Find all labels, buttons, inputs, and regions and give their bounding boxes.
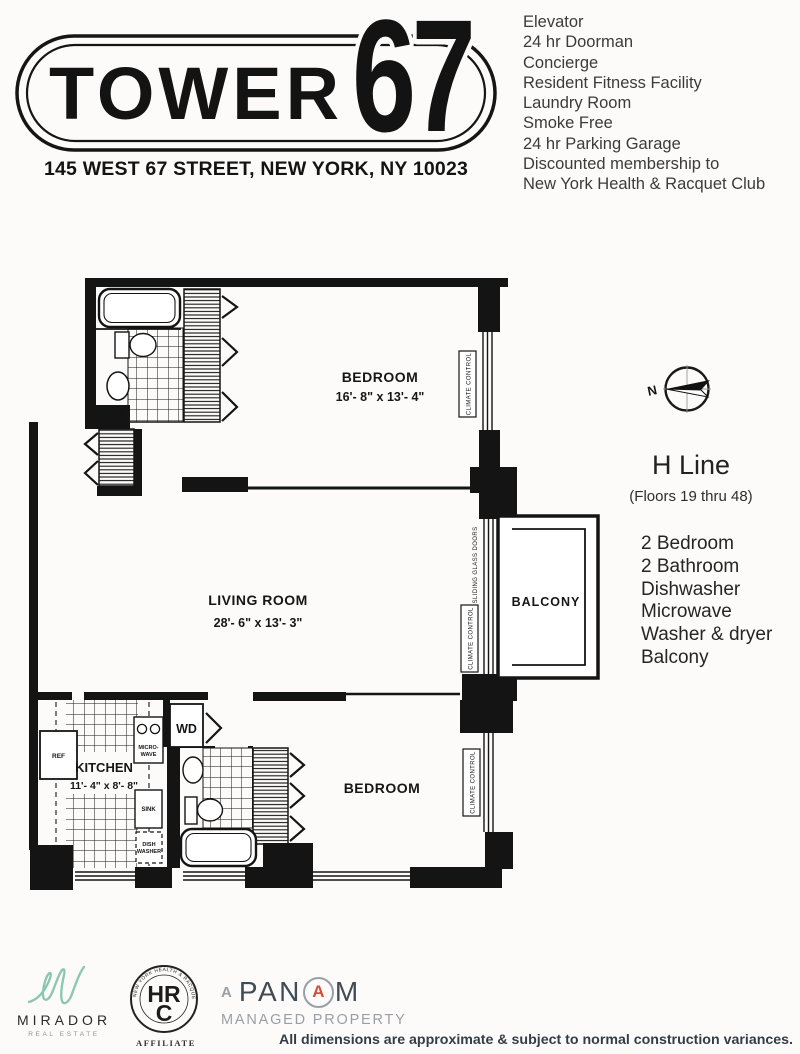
- climate-control-label: CLIMATE CONTROL: [471, 751, 477, 814]
- bath-sink: [107, 372, 129, 400]
- sink-label: SINK: [141, 807, 156, 813]
- balcony-label: BALCONY: [512, 595, 581, 609]
- foyer-closet: [99, 429, 134, 486]
- bath-sink: [183, 757, 203, 783]
- living-room-label: LIVING ROOM: [208, 592, 308, 608]
- toilet-tank: [115, 332, 129, 358]
- dishwasher-label: DISH: [142, 842, 155, 848]
- bathroom-bottom: [181, 748, 256, 866]
- mirador-logo-icon: [24, 962, 96, 1010]
- wd-label: WD: [176, 722, 197, 736]
- closet-door-chevron: [222, 296, 237, 318]
- toilet-bowl: [198, 799, 223, 821]
- sliding-glass-doors-label: SLIDING GLASS DOORS: [473, 527, 479, 604]
- hrc-monogram: C: [156, 1000, 173, 1026]
- microwave-label: MICRO-: [138, 745, 158, 751]
- bedroom1-dimensions: 16'- 8" x 13'- 4": [336, 390, 425, 404]
- microwave-label: WAVE: [141, 752, 157, 758]
- kitchen-label: KITCHEN: [75, 760, 133, 775]
- bedroom2-label: BEDROOM: [344, 780, 421, 796]
- bathtub: [99, 289, 180, 327]
- dishwasher-label: WASHER: [137, 849, 161, 855]
- ref-label: REF: [52, 753, 65, 760]
- dimensions-disclaimer: All dimensions are approximate & subject…: [279, 1032, 793, 1048]
- living-room-dimensions: 28'- 6" x 13'- 3": [214, 616, 303, 630]
- flyer-page: TOWER 67 145 WEST 67 STREET, NEW YORK, N…: [0, 0, 800, 1054]
- floor-plan: CLIMATE CONTROL CLIMATE CONTROL CLIMATE …: [0, 0, 800, 1054]
- mirador-tagline: REAL ESTATE: [16, 1031, 112, 1038]
- bedroom2-closet: [253, 748, 288, 844]
- climate-control-label: CLIMATE CONTROL: [469, 607, 475, 670]
- panam-prefix: A: [221, 984, 232, 1001]
- toilet-tank: [185, 797, 197, 824]
- burner: [150, 724, 159, 733]
- climate-control-label: CLIMATE CONTROL: [467, 352, 473, 415]
- hrc-logo-icon: NEW YORK HEALTH & RACQUET CLUB HR C: [126, 961, 202, 1037]
- burner: [137, 724, 146, 733]
- compass-icon: N: [646, 365, 711, 413]
- panam-circle-a-icon: A: [303, 977, 334, 1008]
- wd-door-chevron: [206, 713, 221, 743]
- north-label: N: [646, 382, 658, 399]
- panam-word: PAN: [239, 976, 302, 1008]
- kitchen-dimensions: 11'- 4" x 8'- 8": [70, 780, 138, 792]
- panam-subtitle: MANAGED PROPERTY: [221, 1012, 407, 1028]
- panam-logo: A PAN A M MANAGED PROPERTY: [221, 976, 407, 1028]
- hrc-affiliate-label: AFFILIATE: [126, 1038, 206, 1048]
- bathtub: [181, 829, 256, 866]
- bathroom-top: [99, 289, 183, 422]
- toilet-bowl: [130, 334, 156, 357]
- bedroom1-closet: [184, 289, 220, 422]
- mirador-name: MIRADOR: [16, 1012, 112, 1028]
- panam-red-a: A: [312, 982, 324, 1002]
- climate-controls: CLIMATE CONTROL CLIMATE CONTROL CLIMATE …: [459, 351, 480, 816]
- bedroom1-label: BEDROOM: [342, 369, 419, 385]
- panam-word: M: [335, 976, 361, 1008]
